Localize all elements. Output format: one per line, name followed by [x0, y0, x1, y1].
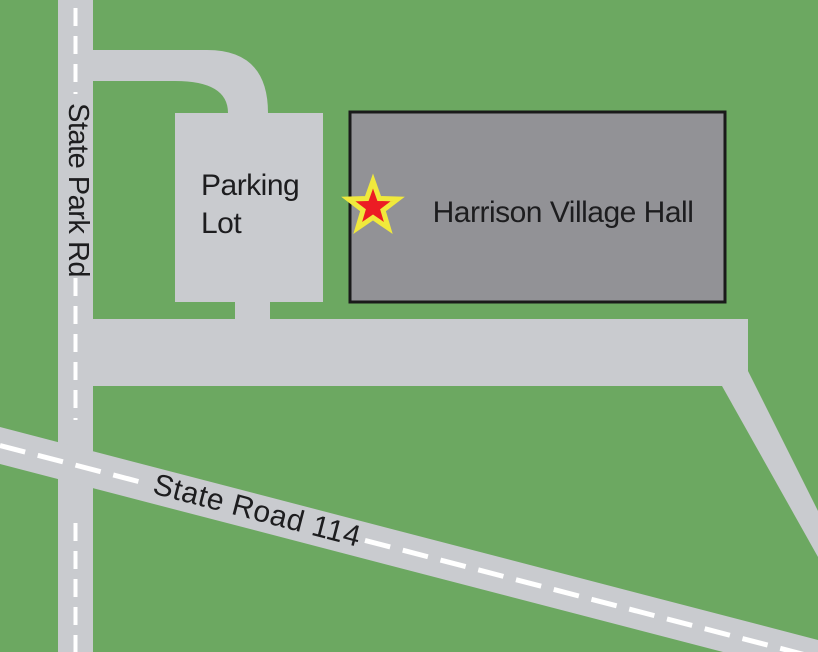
parking-lot-driveway [235, 300, 270, 322]
map-canvas: State Park Rd Parking Lot Harrison Villa… [0, 0, 818, 652]
village-hall-label: Harrison Village Hall [402, 196, 724, 230]
parking-lot-label-line1: Parking [201, 167, 299, 205]
state-park-rd-label: State Park Rd [63, 103, 92, 277]
parking-lot-label: Parking Lot [201, 167, 299, 243]
parking-lot-label-line2: Lot [201, 205, 299, 243]
map-graphics [0, 0, 818, 652]
main-road [58, 319, 748, 386]
